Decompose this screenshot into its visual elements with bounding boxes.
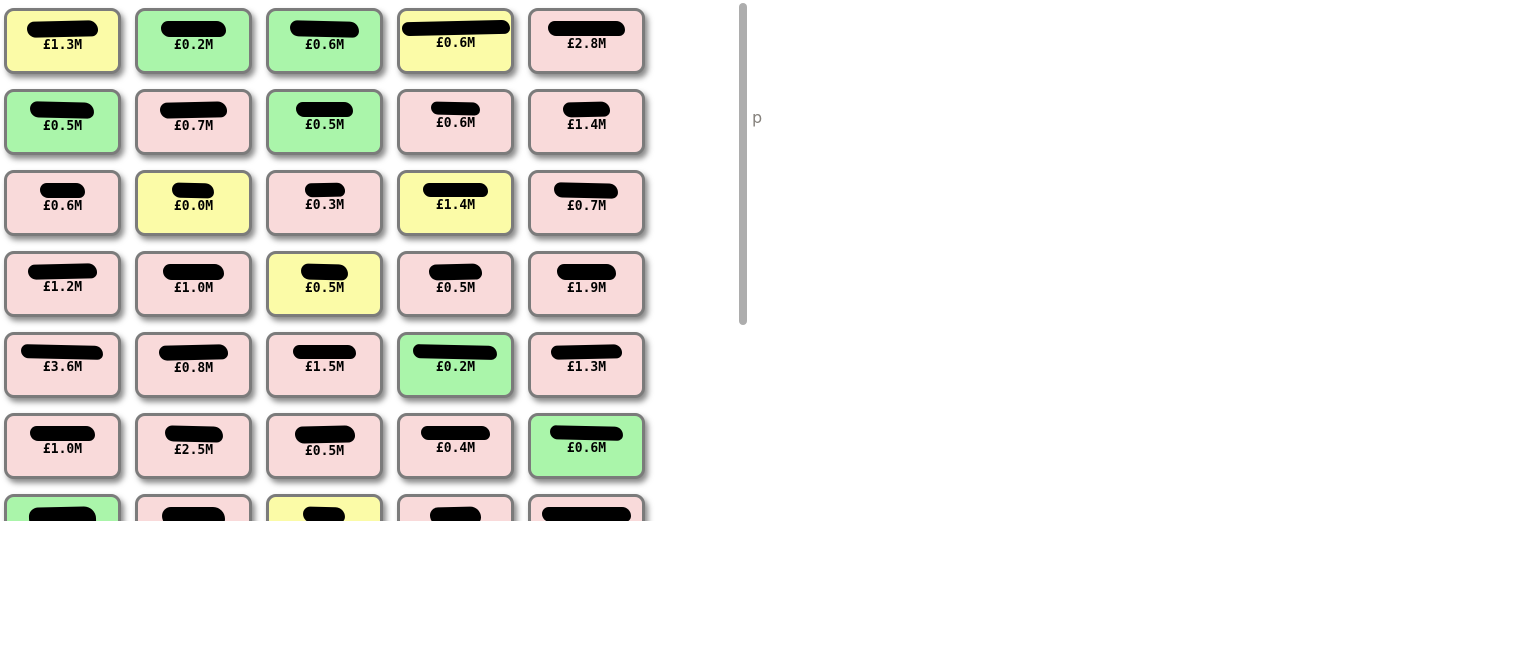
tile-grid-viewport: £1.3M£0.2M£0.6M£0.6M£2.8M£0.5M£0.7M£0.5M… [0, 0, 662, 521]
kpi-tile[interactable]: £0.5M [397, 251, 514, 317]
redacted-title [431, 101, 480, 115]
redacted-title [30, 426, 94, 441]
kpi-tile[interactable]: £0.5M [266, 413, 383, 479]
tile-value: £0.6M [43, 200, 82, 214]
tile-value: £0.7M [174, 120, 213, 134]
kpi-tile[interactable]: £2.5M [135, 413, 252, 479]
redacted-title [303, 507, 346, 521]
tile-value: £0.6M [567, 442, 606, 456]
tile-value: £1.4M [567, 119, 606, 133]
kpi-tile[interactable] [4, 494, 121, 521]
tile-value: £2.8M [567, 38, 606, 52]
tile-value: £1.3M [567, 361, 606, 375]
redacted-title [548, 21, 626, 36]
kpi-tile[interactable]: £1.2M [4, 251, 121, 317]
kpi-tile[interactable]: £0.6M [4, 170, 121, 236]
kpi-tile[interactable]: £0.8M [135, 332, 252, 398]
kpi-tile[interactable] [266, 494, 383, 521]
tile-value: £1.0M [43, 443, 82, 457]
redacted-title [421, 426, 490, 440]
kpi-tile[interactable]: £2.8M [528, 8, 645, 74]
redacted-title [290, 20, 359, 38]
tile-value: £0.5M [305, 119, 344, 133]
redacted-title [160, 101, 227, 119]
kpi-tile[interactable]: £0.7M [528, 170, 645, 236]
kpi-tile[interactable]: £0.4M [397, 413, 514, 479]
redacted-title [163, 264, 224, 280]
kpi-tile[interactable]: £1.3M [528, 332, 645, 398]
page: £1.3M£0.2M£0.6M£0.6M£2.8M£0.5M£0.7M£0.5M… [0, 0, 1539, 648]
redacted-title [304, 183, 344, 198]
kpi-tile[interactable]: £1.4M [397, 170, 514, 236]
kpi-tile[interactable]: £0.7M [135, 89, 252, 155]
redacted-title [554, 182, 619, 198]
kpi-tile[interactable] [528, 494, 645, 521]
kpi-tile[interactable] [135, 494, 252, 521]
tile-value: £0.5M [43, 120, 82, 134]
redacted-title [557, 264, 617, 280]
kpi-tile[interactable] [397, 494, 514, 521]
kpi-grid: £1.3M£0.2M£0.6M£0.6M£2.8M£0.5M£0.7M£0.5M… [4, 8, 645, 521]
redacted-title [294, 425, 354, 443]
redacted-title [172, 183, 215, 199]
tile-value: £0.0M [174, 200, 213, 214]
tile-value: £0.6M [436, 37, 475, 51]
tile-value: £2.5M [174, 444, 213, 458]
tile-value: £1.5M [305, 361, 344, 375]
redacted-title [563, 101, 610, 117]
kpi-tile[interactable]: £0.5M [266, 89, 383, 155]
kpi-tile[interactable]: £0.6M [528, 413, 645, 479]
tile-value: £0.3M [305, 199, 344, 213]
redacted-title [30, 101, 95, 118]
redacted-title [159, 344, 228, 361]
redacted-title [301, 263, 348, 280]
kpi-tile[interactable]: £0.2M [135, 8, 252, 74]
tile-value: £1.2M [43, 281, 82, 295]
tile-value: £0.8M [174, 362, 213, 376]
kpi-tile[interactable]: £0.6M [397, 8, 514, 74]
redacted-title [21, 344, 103, 360]
tile-value: £0.2M [436, 361, 475, 375]
kpi-tile[interactable]: £0.3M [266, 170, 383, 236]
tile-value: £0.4M [436, 442, 475, 456]
redacted-title [28, 263, 97, 280]
redacted-title [550, 425, 624, 441]
kpi-tile[interactable]: £0.5M [4, 89, 121, 155]
tile-value: £0.7M [567, 200, 606, 214]
tile-value: £0.5M [305, 282, 344, 296]
kpi-tile[interactable]: £1.0M [4, 413, 121, 479]
tile-value: £1.9M [567, 282, 606, 296]
redacted-title [27, 20, 98, 38]
redacted-title [413, 344, 498, 360]
redacted-title [293, 345, 355, 359]
redacted-title [40, 183, 84, 198]
kpi-tile[interactable]: £3.6M [4, 332, 121, 398]
tile-value: £0.2M [174, 39, 213, 53]
kpi-tile[interactable]: £0.5M [266, 251, 383, 317]
redacted-title [162, 507, 224, 521]
kpi-tile[interactable]: £0.0M [135, 170, 252, 236]
tile-value: £1.0M [174, 282, 213, 296]
stray-text-p: p [752, 108, 762, 128]
redacted-title [161, 21, 225, 37]
kpi-tile[interactable]: £0.2M [397, 332, 514, 398]
tile-value: £0.5M [305, 445, 344, 459]
kpi-tile[interactable]: £0.6M [266, 8, 383, 74]
redacted-title [296, 102, 354, 117]
tile-value: £1.4M [436, 199, 475, 213]
kpi-tile[interactable]: £1.4M [528, 89, 645, 155]
kpi-tile[interactable]: £1.0M [135, 251, 252, 317]
kpi-tile[interactable]: £0.6M [397, 89, 514, 155]
tile-value: £0.5M [436, 282, 475, 296]
tile-value: £3.6M [43, 361, 82, 375]
redacted-title [423, 183, 487, 197]
tile-value: £0.6M [436, 117, 475, 131]
tile-value: £0.6M [305, 39, 344, 53]
tile-value: £1.3M [43, 39, 82, 53]
kpi-tile[interactable]: £1.5M [266, 332, 383, 398]
vertical-scrollbar[interactable] [739, 3, 747, 325]
redacted-title [429, 263, 483, 280]
redacted-title [164, 425, 222, 442]
kpi-tile[interactable]: £1.9M [528, 251, 645, 317]
redacted-title [430, 506, 481, 521]
redacted-title [551, 344, 622, 360]
redacted-title [402, 20, 510, 36]
redacted-title [29, 506, 96, 521]
kpi-tile[interactable]: £1.3M [4, 8, 121, 74]
redacted-title [542, 507, 631, 521]
